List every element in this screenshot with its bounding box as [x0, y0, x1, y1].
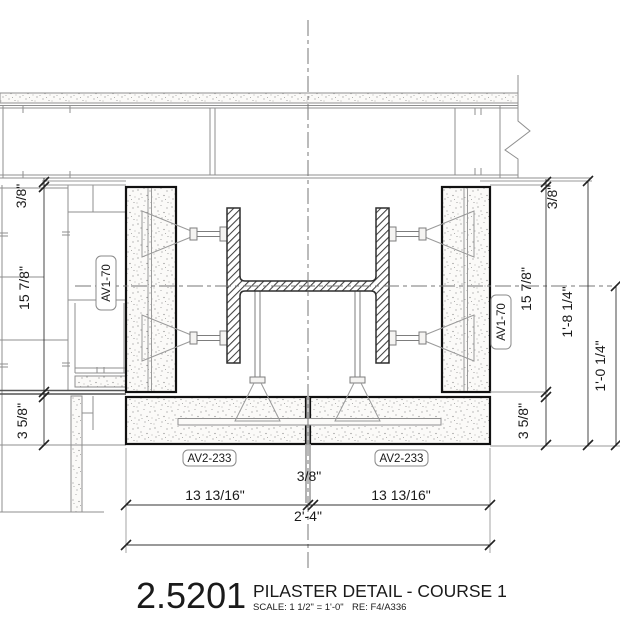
- dim-bottom-joint: 3/8": [297, 468, 321, 484]
- detail-title: PILASTER DETAIL - COURSE 1: [253, 581, 507, 601]
- dim-right-middle: 15 7/8": [518, 267, 534, 311]
- detail-scale: SCALE: 1 1/2" = 1'-0": [253, 602, 344, 613]
- pilaster-block-right: [442, 187, 490, 392]
- label-pilaster-left: AV1-70: [101, 264, 113, 302]
- dim-right-overall-outer: 1'-0 1/4": [592, 340, 608, 391]
- dim-right-overall-inner: 1'-8 1/4": [559, 286, 575, 337]
- dim-left-middle: 15 7/8": [16, 266, 32, 310]
- dim-bottom-overall: 2'-4": [294, 508, 322, 524]
- dim-right-top: 3/8": [544, 185, 560, 209]
- deck-topping: [0, 93, 518, 103]
- detail-number: 2.5201: [136, 575, 246, 616]
- dim-bottom-right: 13 13/16": [371, 487, 430, 503]
- label-course-left: AV2-233: [188, 453, 232, 465]
- dim-left-top: 3/8": [13, 184, 29, 208]
- dim-right-bottom: 3 5/8": [515, 403, 531, 439]
- detail-reference: RE: F4/A336: [352, 602, 406, 613]
- label-pilaster-right: AV1-70: [496, 303, 508, 341]
- label-course-right: AV2-233: [380, 453, 424, 465]
- joint-reinforcement-slot: [178, 419, 441, 426]
- pilaster-detail-drawing: 3/8" 15 7/8" 3 5/8" 3/8" 15 7/8" 3 5/8" …: [0, 0, 620, 620]
- pilaster-detail-sheet: 3/8" 15 7/8" 3 5/8" 3/8" 15 7/8" 3 5/8" …: [0, 0, 620, 620]
- dim-left-bottom: 3 5/8": [14, 403, 30, 439]
- existing-sill-course: [75, 376, 126, 387]
- existing-wall-stud: [71, 396, 82, 512]
- dim-bottom-left: 13 13/16": [185, 487, 244, 503]
